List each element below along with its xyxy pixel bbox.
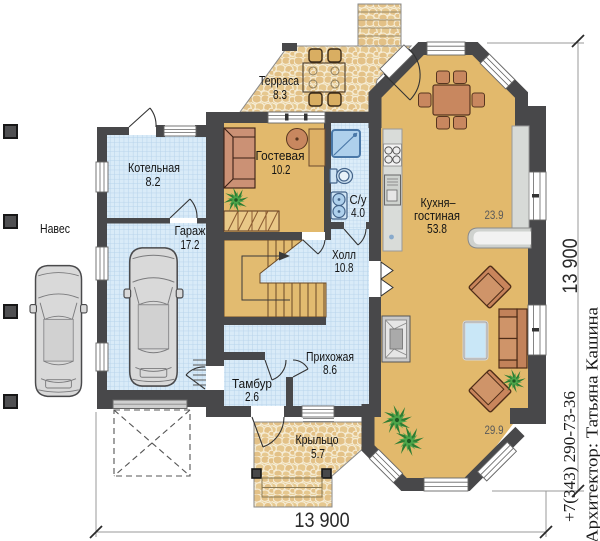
svg-text:10.8: 10.8	[335, 261, 354, 275]
svg-text:5.7: 5.7	[311, 447, 325, 461]
svg-text:10.2: 10.2	[272, 163, 291, 177]
svg-text:8.6: 8.6	[323, 363, 337, 377]
svg-text:53.8: 53.8	[427, 222, 447, 236]
svg-text:Котельная: Котельная	[128, 161, 180, 175]
svg-text:29.9: 29.9	[485, 423, 504, 437]
svg-text:Терраса: Терраса	[259, 74, 299, 88]
svg-text:С/у: С/у	[350, 193, 368, 207]
svg-text:Гостевая: Гостевая	[256, 149, 305, 163]
svg-text:13 900: 13 900	[559, 238, 583, 293]
svg-text:Архитектор: Татьяна Кашина: Архитектор: Татьяна Кашина	[583, 306, 600, 541]
svg-text:Прихожая: Прихожая	[306, 350, 354, 364]
svg-text:гостиная: гостиная	[414, 209, 460, 223]
svg-text:2.6: 2.6	[245, 390, 259, 404]
svg-text:13 900: 13 900	[294, 509, 349, 533]
svg-text:Крыльцо: Крыльцо	[296, 433, 339, 447]
svg-text:8.2: 8.2	[146, 175, 161, 189]
svg-text:23.9: 23.9	[485, 208, 504, 222]
svg-text:8.3: 8.3	[273, 88, 287, 102]
svg-text:+7(343) 290-73-36: +7(343) 290-73-36	[560, 391, 579, 522]
svg-text:Холл: Холл	[332, 248, 356, 262]
svg-text:4.0: 4.0	[351, 206, 365, 220]
svg-text:Тамбур: Тамбур	[232, 377, 272, 391]
svg-text:17.2: 17.2	[181, 238, 200, 252]
svg-text:Гараж: Гараж	[175, 224, 207, 238]
svg-text:Навес: Навес	[40, 222, 70, 236]
svg-text:Кухня–: Кухня–	[421, 196, 456, 210]
